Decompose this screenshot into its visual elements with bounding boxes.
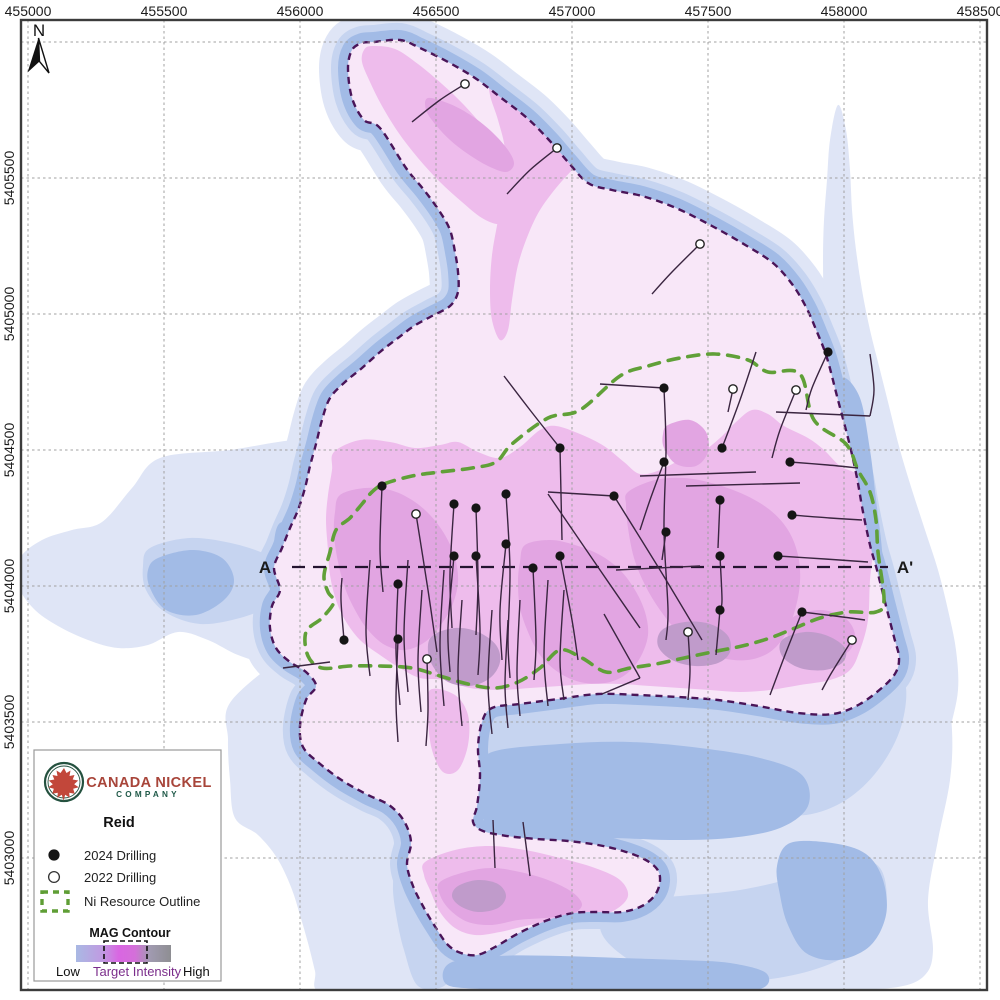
svg-text:455000: 455000 <box>5 3 52 19</box>
svg-text:455500: 455500 <box>141 3 188 19</box>
svg-text:COMPANY: COMPANY <box>116 790 180 799</box>
svg-text:458000: 458000 <box>821 3 868 19</box>
svg-text:457500: 457500 <box>685 3 732 19</box>
svg-text:458500: 458500 <box>957 3 1000 19</box>
svg-text:A: A <box>259 558 271 577</box>
svg-text:High: High <box>183 964 210 979</box>
svg-text:A': A' <box>897 558 913 577</box>
svg-text:5405000: 5405000 <box>1 287 17 342</box>
svg-text:MAG Contour: MAG Contour <box>89 926 170 940</box>
svg-text:Low: Low <box>56 964 80 979</box>
svg-text:5404000: 5404000 <box>1 559 17 614</box>
svg-text:457000: 457000 <box>549 3 596 19</box>
svg-text:Target Intensity: Target Intensity <box>93 964 182 979</box>
svg-text:456500: 456500 <box>413 3 460 19</box>
svg-text:5405500: 5405500 <box>1 151 17 206</box>
svg-text:2024 Drilling: 2024 Drilling <box>84 848 156 863</box>
svg-text:CANADA NICKEL: CANADA NICKEL <box>86 775 212 791</box>
svg-text:N: N <box>33 21 45 40</box>
svg-text:2022 Drilling: 2022 Drilling <box>84 870 156 885</box>
svg-text:456000: 456000 <box>277 3 324 19</box>
svg-text:5403500: 5403500 <box>1 695 17 750</box>
svg-text:Ni Resource Outline: Ni Resource Outline <box>84 894 200 909</box>
svg-text:5403000: 5403000 <box>1 831 17 886</box>
svg-text:Reid: Reid <box>103 815 134 831</box>
svg-text:5404500: 5404500 <box>1 423 17 478</box>
